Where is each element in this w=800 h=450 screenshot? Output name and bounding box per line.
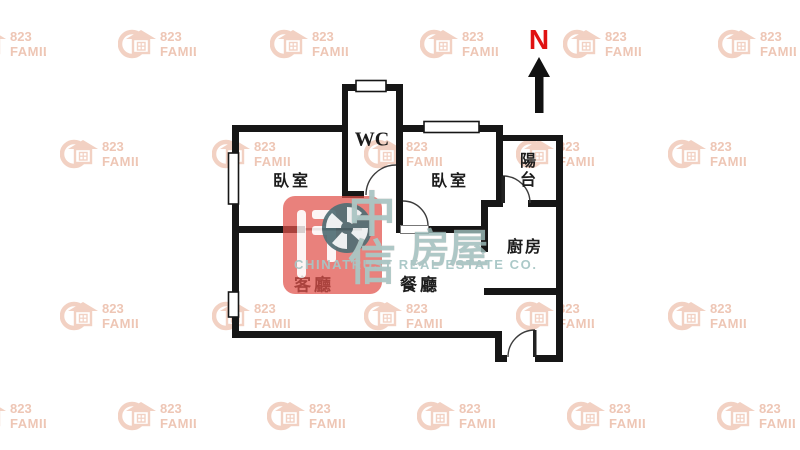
north-arrow-icon bbox=[0, 0, 800, 450]
floor-plan-image: 823FAMILY823FAMILY823FAMILY823FAMILY823F… bbox=[0, 0, 800, 450]
